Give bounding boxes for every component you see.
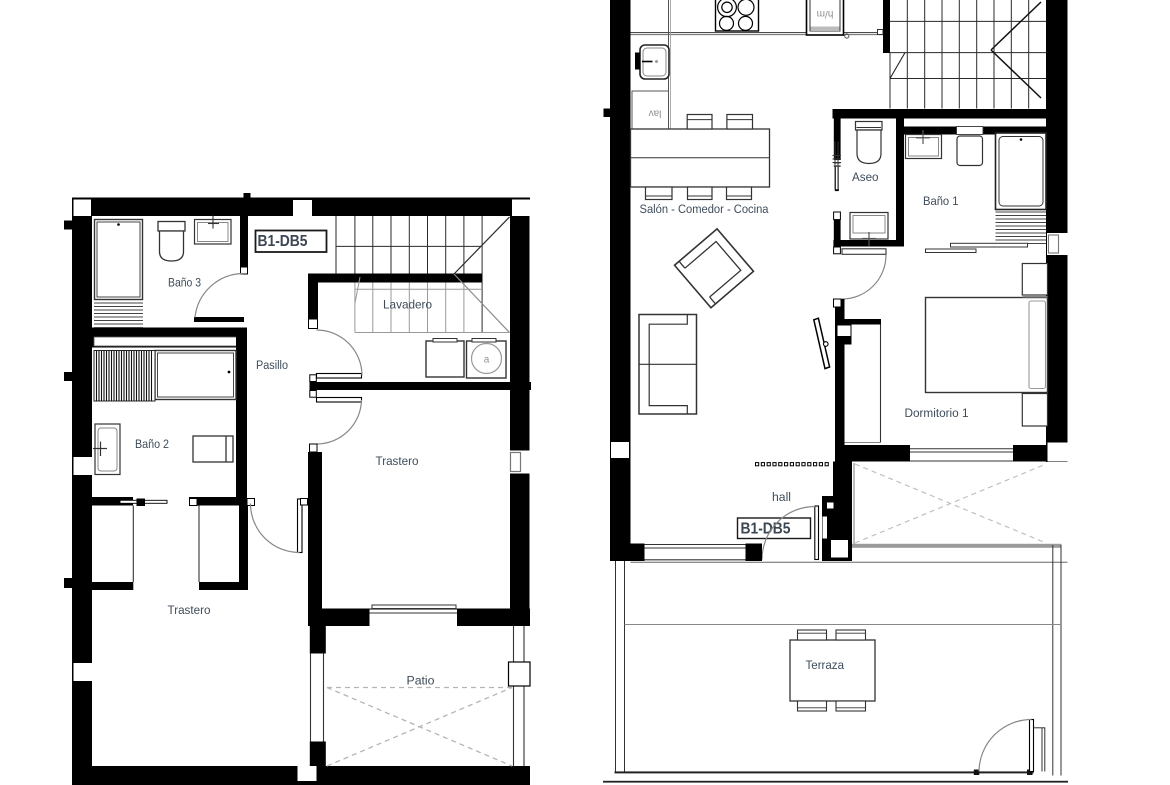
svg-text:Dormitorio 1: Dormitorio 1 bbox=[905, 406, 969, 420]
svg-text:h/m: h/m bbox=[817, 8, 834, 19]
svg-text:Baño 3: Baño 3 bbox=[168, 276, 201, 290]
svg-text:lav: lav bbox=[649, 108, 662, 119]
svg-text:a: a bbox=[484, 355, 490, 366]
svg-text:Trastero: Trastero bbox=[376, 454, 419, 468]
svg-text:Patio: Patio bbox=[407, 674, 435, 688]
svg-text:Baño 2: Baño 2 bbox=[135, 437, 169, 451]
svg-text:hall: hall bbox=[772, 490, 791, 504]
svg-text:Terraza: Terraza bbox=[806, 658, 845, 672]
svg-text:Trastero: Trastero bbox=[168, 603, 211, 617]
svg-text:Aseo: Aseo bbox=[852, 170, 879, 184]
svg-text:B1-DB5: B1-DB5 bbox=[258, 233, 308, 250]
svg-text:Baño 1: Baño 1 bbox=[923, 194, 959, 208]
svg-text:Pasillo: Pasillo bbox=[256, 358, 288, 372]
svg-text:Lavadero: Lavadero bbox=[383, 298, 432, 312]
svg-text:B1-DB5: B1-DB5 bbox=[741, 521, 791, 538]
svg-text:Salón - Comedor - Cocina: Salón - Comedor - Cocina bbox=[640, 202, 769, 216]
